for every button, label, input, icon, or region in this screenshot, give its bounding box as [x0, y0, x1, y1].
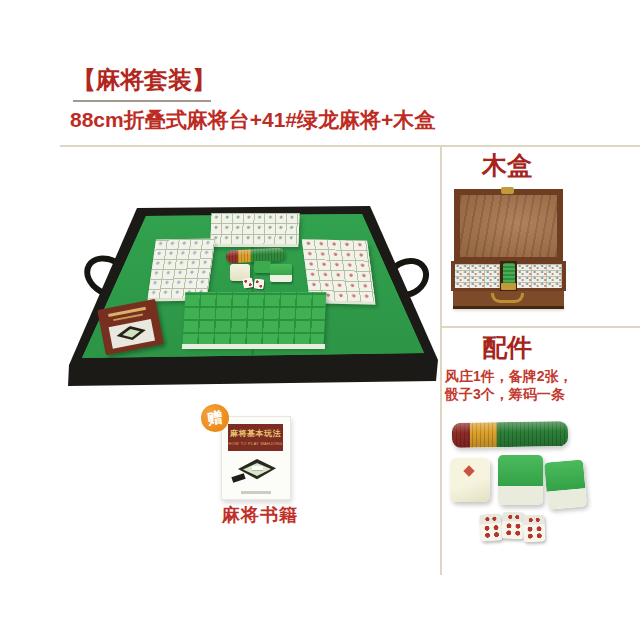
accessories-desc-line1: 风庄1件，备牌2张，: [445, 368, 573, 386]
box-shadow: [453, 307, 564, 311]
green-tile-flat: [254, 261, 271, 273]
green-tile-face: [270, 275, 292, 282]
green-tile-back: [270, 264, 292, 275]
box-lid: [454, 189, 563, 263]
gift-book-cover: 麻将基本玩法 HOW TO PLAY MAHJONG: [221, 416, 291, 500]
box-chip-roll: [503, 263, 515, 284]
tile-wall-facedown-edge: [182, 344, 325, 349]
mini-tiles: [252, 466, 263, 470]
page-title: 【麻将套装】: [72, 64, 216, 96]
wooden-box-photo: [451, 189, 566, 309]
box-handle-icon: [491, 293, 524, 303]
title-underline: [73, 100, 211, 102]
box-tiles-left: [455, 264, 500, 288]
box-clasp-icon: [501, 187, 514, 194]
product-banner: { "header": { "title": "【麻将套装】", "subtit…: [0, 0, 640, 640]
book-title: 麻将基本玩法: [228, 424, 283, 439]
accessories-ivory-tile: [450, 458, 490, 502]
tile-wall-facedown: [183, 292, 327, 345]
book-cover-panel: [109, 319, 155, 349]
accessories-green-tile: [498, 455, 543, 505]
accessories-desc-line2: 骰子3个，筹码一条: [445, 386, 565, 404]
book-subtitle: HOW TO PLAY MAHJONG: [228, 441, 283, 446]
green-tile-back: [498, 455, 543, 486]
red-character-mark: [463, 465, 474, 476]
book-cover-header: 麻将基本玩法 HOW TO PLAY MAHJONG: [228, 424, 283, 451]
dice-icon: [254, 279, 265, 290]
dice-icon: [523, 515, 546, 543]
green-tile-back: [544, 459, 585, 491]
accessories-green-tile: [544, 459, 587, 509]
box-chip-roll-base: [501, 283, 516, 290]
product-subtitle: 88cm折叠式麻将台+41#绿龙麻将+木盒: [70, 106, 435, 134]
dice-icon: [502, 512, 525, 540]
book-cover-illustration: [232, 457, 280, 485]
mini-folded-leg: [231, 473, 245, 483]
green-tile-face: [547, 488, 587, 509]
divider-horizontal-right: [440, 326, 640, 328]
publisher-line: [241, 491, 271, 494]
dice-icon: [479, 513, 503, 541]
tile-wall-left: [148, 238, 215, 298]
gift-caption: 麻将书籍: [180, 503, 340, 527]
dice-icon: [242, 277, 253, 288]
accessories-heading: 配件: [447, 331, 567, 364]
divider-horizontal-main: [60, 145, 640, 147]
green-tile-face: [498, 486, 543, 505]
accessories-chip-roll: [452, 421, 568, 448]
wooden-box-heading: 木盒: [447, 149, 567, 182]
green-tile-standing: [270, 264, 292, 282]
mahjong-table-photo: [55, 183, 450, 398]
box-tiles-right: [517, 264, 562, 288]
box-base: [451, 261, 566, 291]
tile-wall-top: [210, 213, 299, 244]
